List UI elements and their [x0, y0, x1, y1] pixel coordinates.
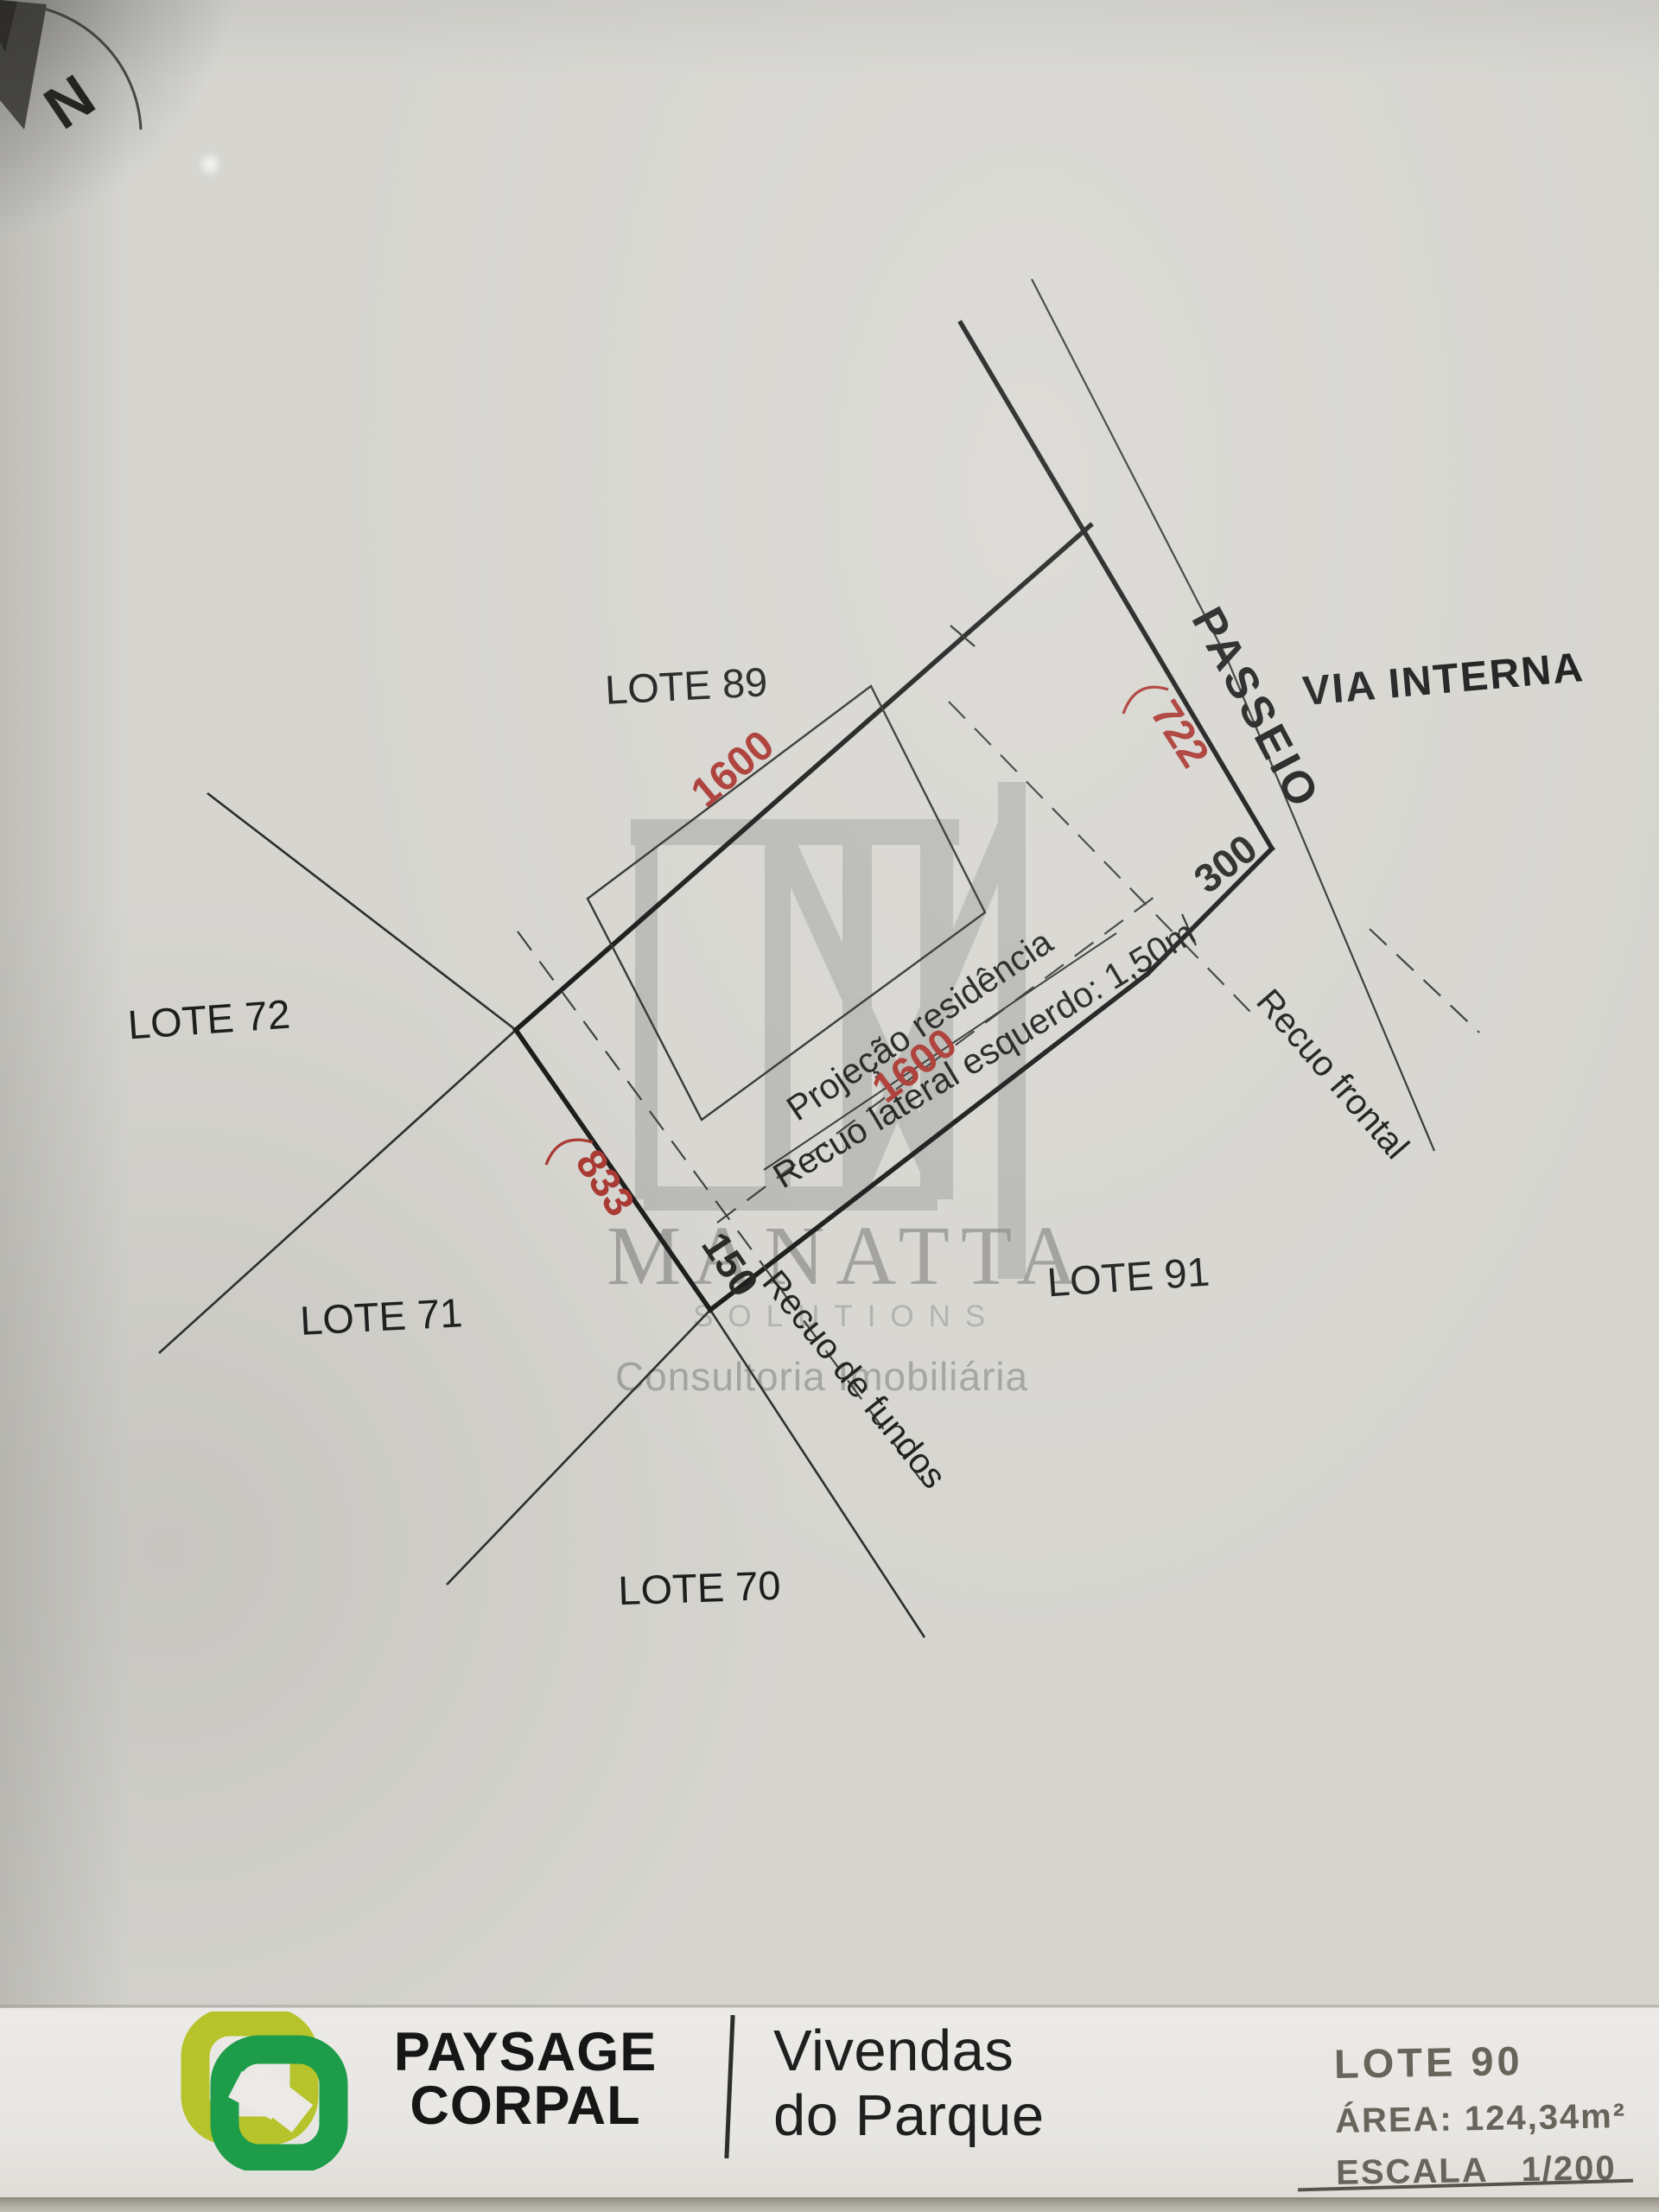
label-lote72: LOTE 72 [126, 991, 291, 1048]
brand-name: PAYSAGE CORPAL [353, 2025, 698, 2133]
dim-rear-833: 833 [566, 1141, 643, 1224]
lot-area: ÁREA: 124,34m² [1335, 2097, 1627, 2141]
brand-line-corpal: CORPAL [353, 2079, 698, 2133]
north-label: N [32, 61, 106, 142]
neighbor-boundary-lines [159, 793, 925, 1637]
label-recuo-fundos: Recuo de fundos [754, 1262, 954, 1496]
project-line-do-parque: do Parque [773, 2083, 1045, 2148]
project-line-vivendas: Vivendas [773, 2018, 1045, 2083]
label-lote89: LOTE 89 [604, 658, 769, 713]
label-lote70: LOTE 70 [618, 1562, 782, 1614]
paysage-corpal-logo-icon [171, 2012, 354, 2175]
dim-front-722: 722 [1141, 693, 1217, 776]
project-name: Vivendas do Parque [773, 2018, 1045, 2148]
label-lote91: LOTE 91 [1046, 1249, 1211, 1306]
label-recuo-lateral: Recuo lateral esquerdo: 1,50m [766, 912, 1202, 1196]
dim-rear-150: 150 [693, 1224, 767, 1305]
glare-spot [199, 149, 221, 180]
front-setback-extension [1370, 929, 1479, 1033]
survey-tick-marks [950, 626, 1196, 945]
label-lote71: LOTE 71 [299, 1289, 464, 1344]
plot-plan-drawing: N LOTE 89 LOTE 72 LOTE 71 LOTE 70 LOTE [0, 0, 1659, 2212]
paper-crease-line [0, 2005, 1659, 2007]
lot-info-block: LOTE 90 ÁREA: 124,34m² ESCALA1/200 [1333, 2035, 1627, 2193]
paper-bottom-edge [0, 2197, 1659, 2212]
lot90-boundary [516, 323, 1272, 1310]
site-plan-photo: { "compass": { "north_label": "N" }, "pl… [0, 0, 1659, 2212]
dim-chamfer-300: 300 [1185, 825, 1265, 901]
label-recuo-frontal: Recuo frontal [1249, 982, 1417, 1166]
brand-line-paysage: PAYSAGE [353, 2025, 698, 2079]
label-via-interna: VIA INTERNA [1301, 645, 1586, 715]
lot-title: LOTE 90 [1333, 2035, 1625, 2088]
dim-nw-1600: 1600 [683, 722, 783, 817]
